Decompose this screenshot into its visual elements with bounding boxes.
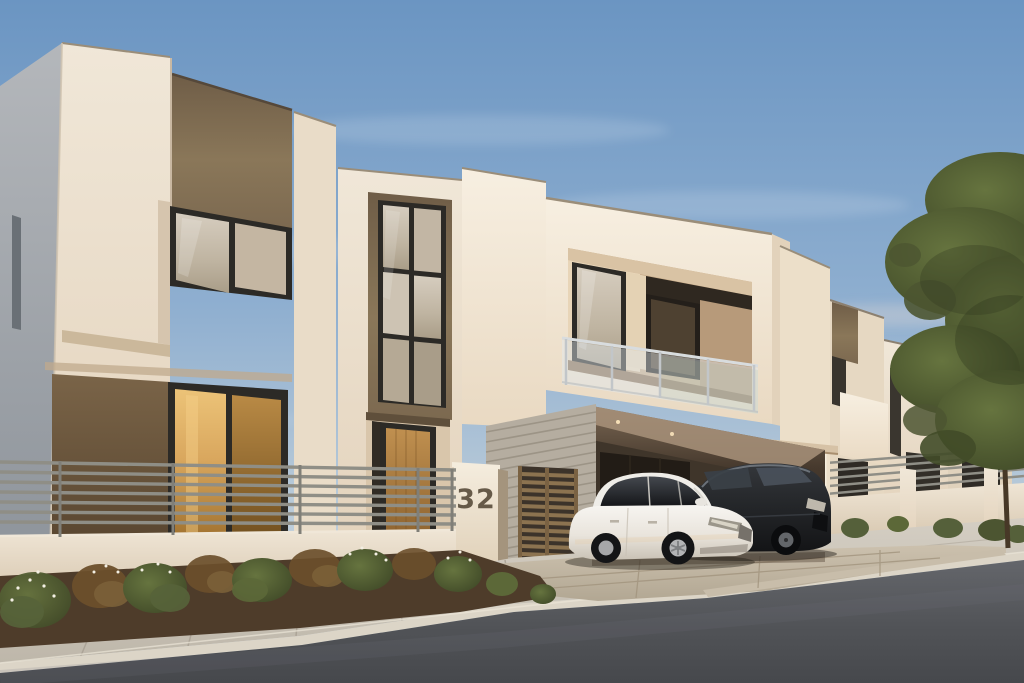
window-pane [414, 342, 441, 407]
window-pane [414, 208, 441, 273]
window-glass [235, 223, 286, 295]
scene-canvas: 32 [0, 0, 1024, 683]
bay-volume [840, 392, 888, 466]
slit-window [12, 215, 21, 330]
door-handle [610, 520, 619, 523]
window-pane [414, 276, 441, 340]
accent-panel [832, 302, 858, 364]
balcony [546, 198, 790, 428]
shrub [486, 572, 518, 596]
pylon [462, 168, 546, 428]
recessed-light [616, 420, 620, 424]
side-mirror [695, 498, 707, 506]
house-number: 32 [456, 484, 496, 515]
photo-modern-townhouses: 32 [0, 0, 1024, 683]
cloud [290, 115, 670, 145]
shrub [530, 584, 556, 604]
stacked-window [378, 200, 446, 408]
wheel-hub [784, 538, 788, 542]
wheel-rim [599, 541, 614, 556]
middle-tower [338, 168, 462, 560]
bay-side-shade [158, 200, 170, 345]
window-pane [383, 338, 409, 403]
recessed-light [670, 432, 674, 436]
shrub [392, 548, 436, 580]
shrub [232, 558, 292, 602]
door-handle [648, 521, 657, 524]
